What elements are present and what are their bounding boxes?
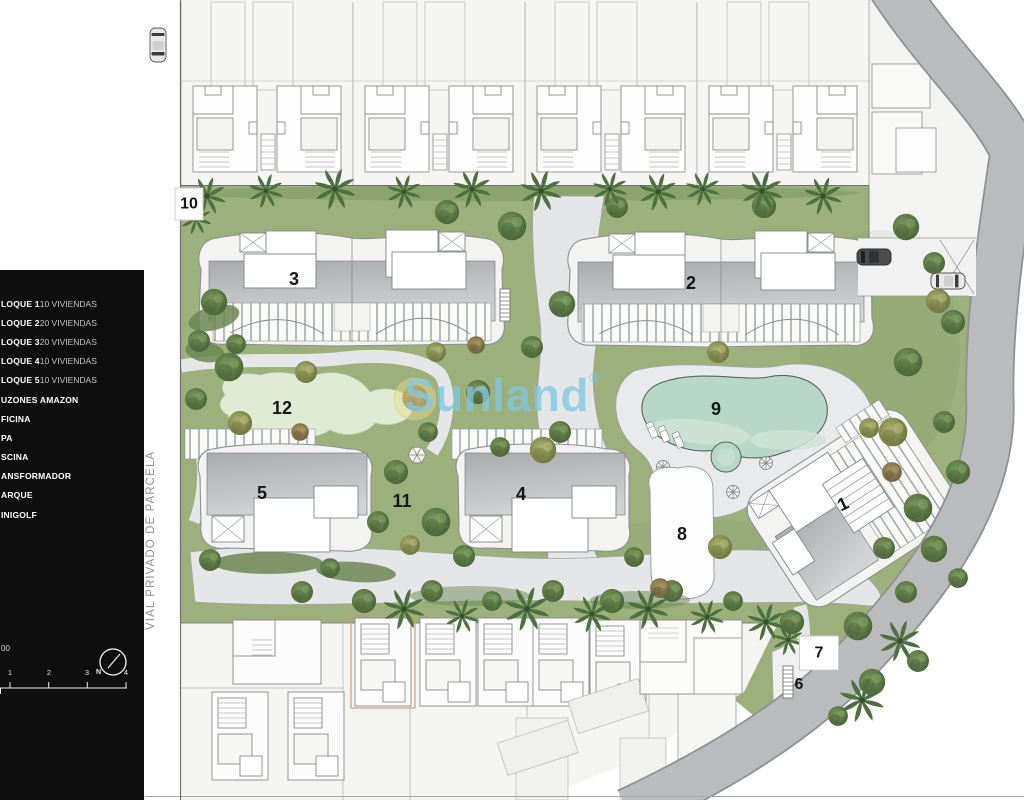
stairs-icon [783, 666, 793, 698]
legend-row: LOQUE 220 VIVIENDAS [1, 313, 144, 332]
legend-key: UZONES AMAZON [1, 395, 78, 405]
legend-key: LOQUE 5 [1, 375, 40, 385]
scale-tick-1: 1 [5, 668, 15, 677]
legend-panel: LOQUE 110 VIVIENDAS LOQUE 220 VIVIENDAS … [0, 270, 144, 800]
scale-bar [0, 674, 132, 696]
legend-key: PA [1, 433, 38, 443]
marker-pool-9: 9 [711, 400, 721, 418]
car-dark [857, 249, 891, 265]
marker-block-5: 5 [257, 484, 267, 502]
legend-value: 10 VIVIENDAS [40, 299, 97, 309]
scale-tick-3: 3 [82, 668, 92, 677]
marker-block-10: 10 [175, 188, 204, 221]
dome-icon [408, 447, 426, 463]
legend-row: LOQUE 410 VIVIENDAS [1, 352, 144, 371]
legend-value: 20 VIVIENDAS [40, 318, 97, 328]
watermark: Sunland® [404, 368, 601, 422]
car-light [931, 273, 965, 289]
car-top-left [150, 28, 166, 62]
marker-area-8: 8 [677, 525, 687, 543]
legend-value: 20 VIVIENDAS [40, 337, 97, 347]
scale-tick-2: 2 [44, 668, 54, 677]
legend-key: INIGOLF [1, 510, 38, 520]
scale-tick-4: 4 [121, 668, 131, 677]
registered-mark: ® [589, 370, 601, 387]
marker-block-2: 2 [686, 274, 696, 292]
marker-block-3: 3 [289, 270, 299, 288]
legend-row: SCINA [1, 448, 144, 467]
legend-rows: LOQUE 110 VIVIENDAS LOQUE 220 VIVIENDAS … [1, 294, 144, 524]
legend-key: SCINA [1, 452, 38, 462]
scale-text: 00 [1, 644, 10, 653]
legend-key: LOQUE 4 [1, 356, 40, 366]
legend-row: FICINA [1, 409, 144, 428]
legend-key: LOQUE 2 [1, 318, 40, 328]
legend-row: ANSFORMADOR [1, 467, 144, 486]
legend-key: LOQUE 3 [1, 337, 40, 347]
legend-row: LOQUE 110 VIVIENDAS [1, 294, 144, 313]
legend-row: ARQUE [1, 486, 144, 505]
watermark-text: Sunland [404, 369, 589, 421]
marker-area-7: 7 [799, 636, 839, 671]
marker-park-11: 11 [392, 492, 411, 510]
legend-row: LOQUE 320 VIVIENDAS [1, 332, 144, 351]
driveway [857, 238, 976, 296]
legend-key: ARQUE [1, 490, 38, 500]
legend-row: UZONES AMAZON [1, 390, 144, 409]
legend-key: ANSFORMADOR [1, 471, 71, 481]
legend-value: 10 VIVIENDAS [40, 356, 97, 366]
stairs-icon [500, 289, 510, 321]
legend-value: 10 VIVIENDAS [40, 375, 97, 385]
marker-area-6: 6 [795, 677, 804, 693]
road-label: VIAL PRIVADO DE PARCELA [145, 438, 167, 643]
legend-key: FICINA [1, 414, 38, 424]
site-plan: 10 3 2 12 9 5 11 4 8 1 7 6 Sunland® VIAL… [0, 0, 1024, 800]
legend-key: LOQUE 1 [1, 299, 40, 309]
legend-row: LOQUE 510 VIVIENDAS [1, 371, 144, 390]
legend-row: PA [1, 428, 144, 447]
marker-block-4: 4 [516, 485, 526, 503]
marker-minigolf-12: 12 [272, 399, 292, 417]
legend-row: INIGOLF [1, 505, 144, 524]
